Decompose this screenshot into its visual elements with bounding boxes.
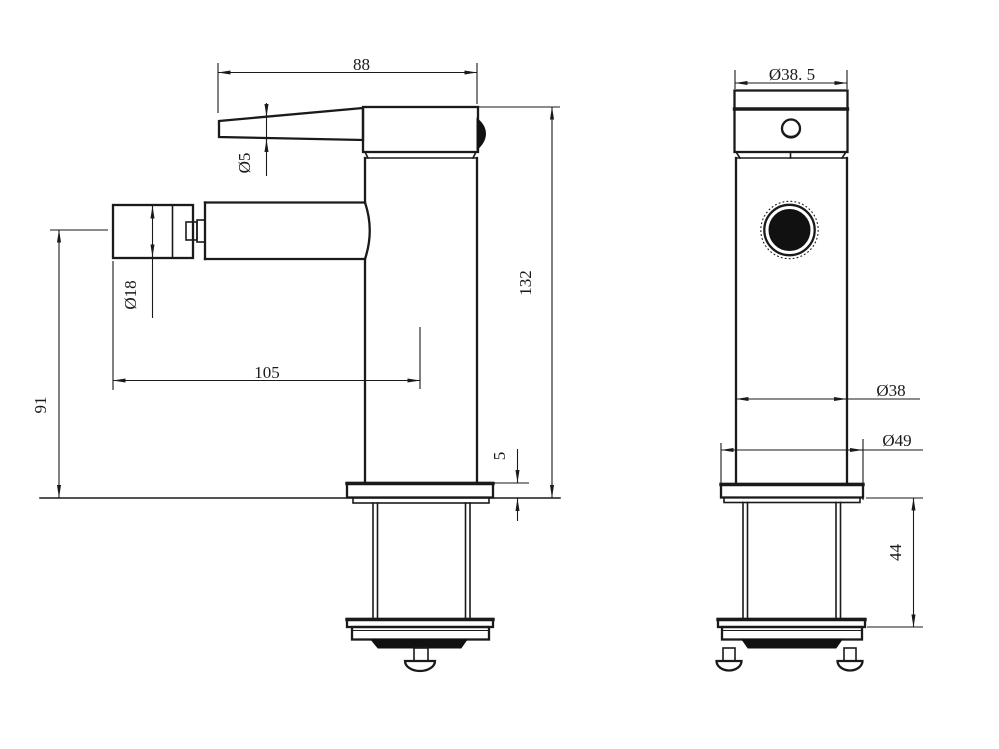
faucet-body-front [736,158,847,484]
mounting-flange-front [721,484,863,503]
dim-label-handle-span: 88 [353,55,370,74]
aerator-connector-inner [186,222,197,240]
faucet-technical-drawing: 88 Ø5 Ø18 105 91 132 [0,0,999,749]
screw-head [405,661,435,671]
dim-label-cap-diameter: Ø38. 5 [769,65,815,84]
dim-lever-diameter: Ø5 [235,103,267,176]
dim-spout-height: 91 [31,230,108,498]
dim-label-flange-thickness: 5 [490,452,509,461]
threaded-shank [373,503,470,619]
dim-flange-diameter: Ø49 [721,431,923,500]
dim-label-shank-height: 44 [886,544,905,562]
dim-shank-height: 44 [866,498,923,627]
dim-handle-span: 88 [218,55,477,113]
aerator-connector-outer [197,220,205,242]
dim-spout-diameter: Ø18 [121,205,153,319]
technical-drawing-canvas: 88 Ø5 Ø18 105 91 132 [0,0,999,749]
side-view: 88 Ø5 Ø18 105 91 132 [31,55,560,671]
mounting-nut-front [718,619,865,648]
dim-label-spout-diameter: Ø18 [121,280,140,309]
front-view: Ø38. 5 Ø38 Ø49 44 [717,65,924,671]
fixing-screw-left [717,648,742,671]
mounting-nut [347,619,493,648]
dim-spout-reach: 105 [113,261,420,390]
flange-base-plate-front [724,498,860,503]
spout-body-fillet [365,203,370,260]
dim-label-spout-height: 91 [31,397,50,414]
fixing-screw [405,648,435,671]
dim-flange-thickness: 5 [490,449,529,521]
rubber-gasket-front [742,640,842,649]
screw-head [717,661,742,671]
rubber-gasket [371,640,467,649]
cartridge-cap-front [735,91,848,153]
fixing-screw-right [838,648,863,671]
dim-body-diameter: Ø38 [736,381,920,400]
dim-total-height: 132 [479,107,560,498]
dim-label-total-height: 132 [516,270,535,296]
faucet-body [365,158,477,483]
handle-pivot-dome [477,119,486,150]
threaded-shank-front [743,503,841,620]
spout-outlet-hole [761,201,818,258]
screw-head [838,661,863,671]
dim-label-flange-diameter: Ø49 [882,431,911,450]
dim-label-body-diameter: Ø38 [876,381,905,400]
screw-hole-shadow-arc [783,132,799,137]
spout [205,203,365,260]
dim-label-spout-reach: 105 [254,363,280,382]
dim-cap-diameter: Ø38. 5 [735,65,847,89]
mounting-flange [347,483,493,503]
lever-handle [219,108,363,140]
cartridge-cap [363,107,478,152]
aerator [113,205,205,258]
dim-label-lever-diameter: Ø5 [235,153,254,174]
